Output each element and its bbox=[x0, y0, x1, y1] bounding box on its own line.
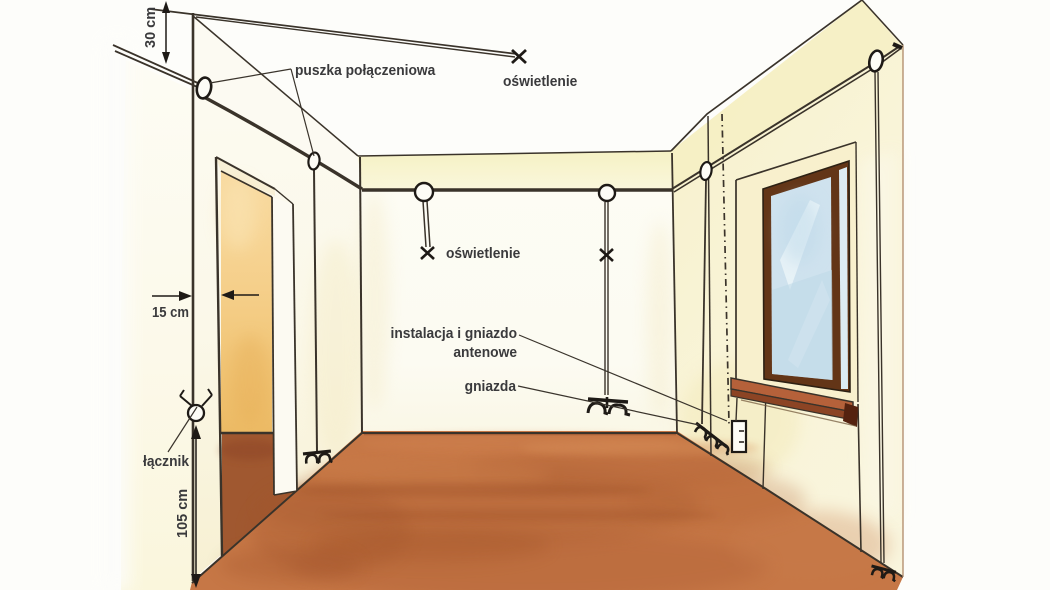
svg-text:gniazda: gniazda bbox=[465, 379, 517, 396]
svg-text:oświetlenie: oświetlenie bbox=[446, 246, 520, 263]
svg-text:puszka połączeniowa: puszka połączeniowa bbox=[295, 63, 436, 80]
svg-text:15 cm: 15 cm bbox=[152, 304, 189, 320]
svg-text:antenowe: antenowe bbox=[453, 345, 517, 362]
svg-text:105 cm: 105 cm bbox=[175, 489, 191, 538]
svg-text:instalacja i gniazdo: instalacja i gniazdo bbox=[391, 326, 518, 343]
svg-text:oświetlenie: oświetlenie bbox=[503, 74, 577, 91]
svg-text:łącznik: łącznik bbox=[143, 454, 190, 471]
svg-text:30 cm: 30 cm bbox=[143, 7, 159, 48]
